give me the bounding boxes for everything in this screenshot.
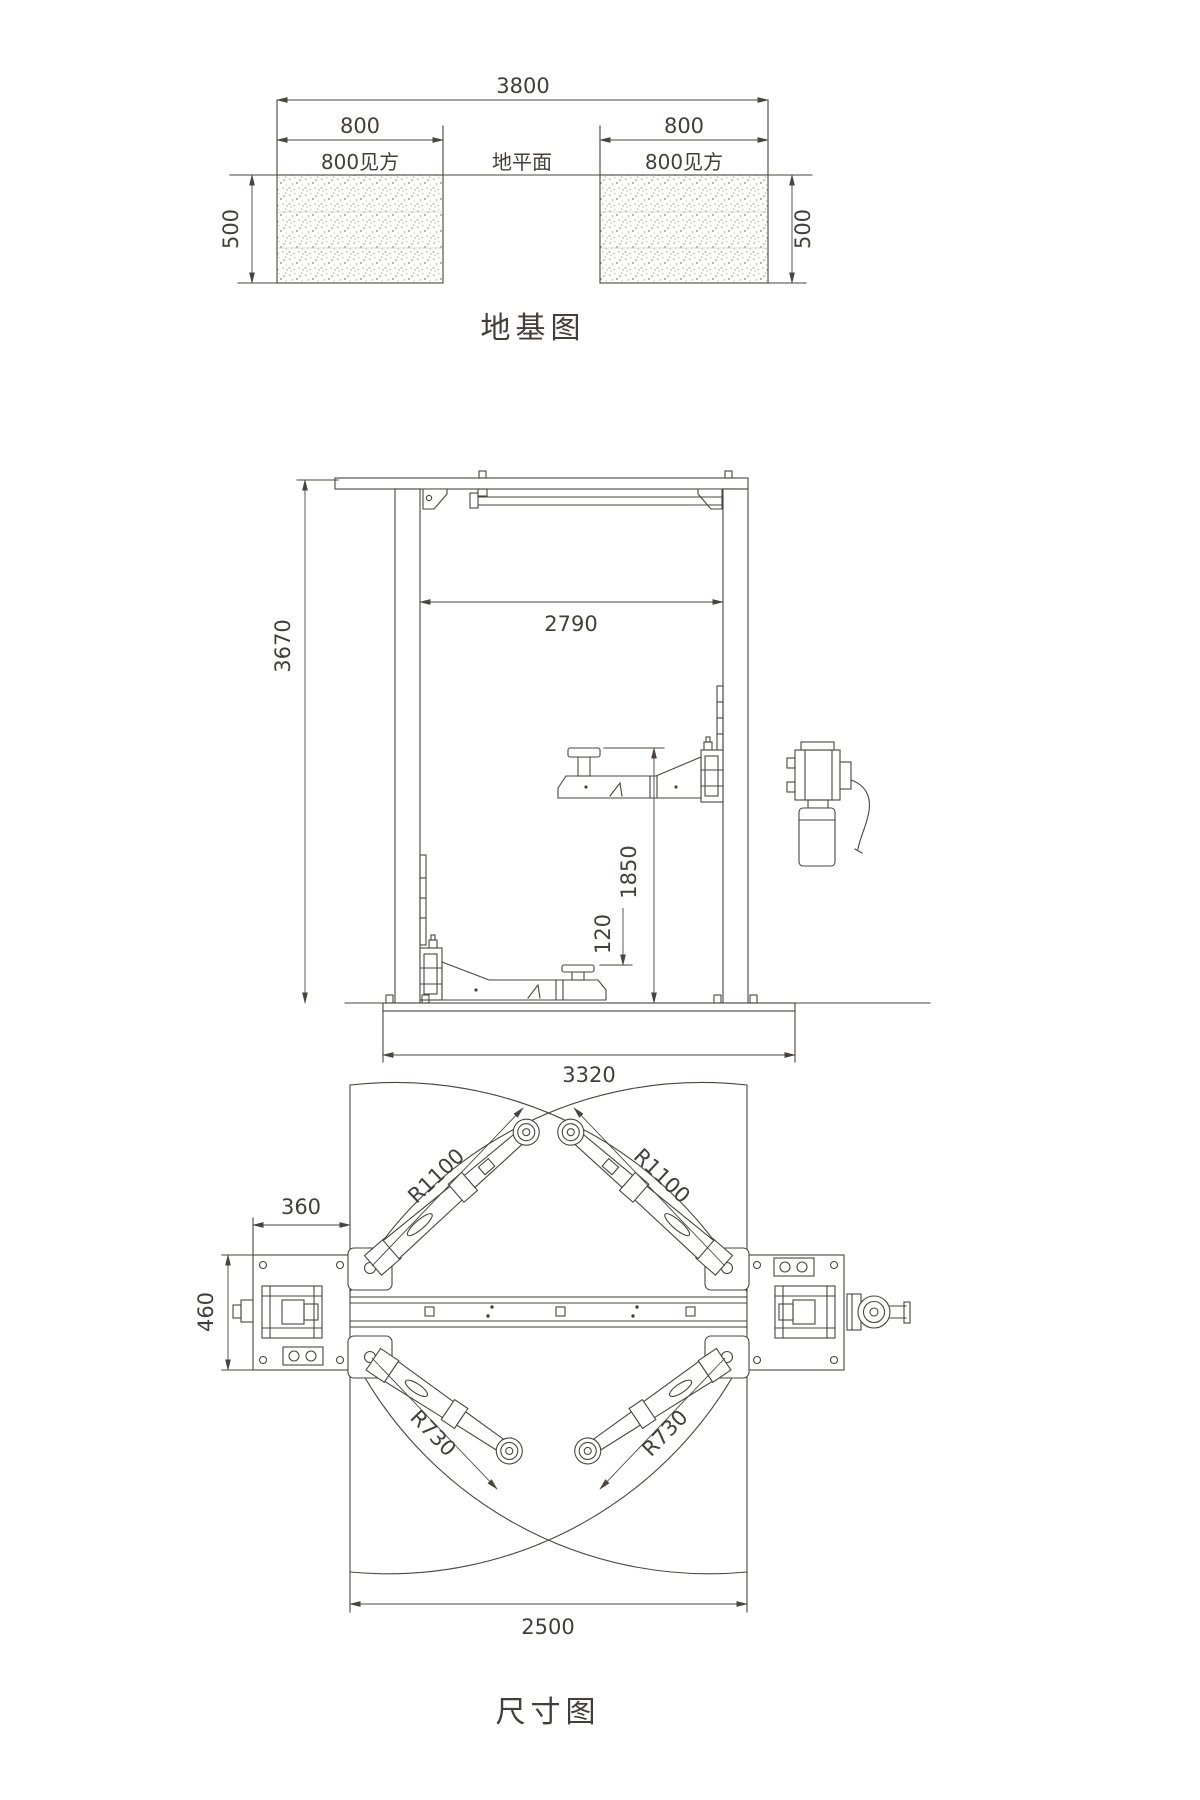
swing-arm-lowered — [442, 962, 606, 1000]
lift-installation-drawing: 3800 800 800 800见方 地平面 800见方 500 — [0, 0, 1200, 1800]
lift-pad-lowered-stem — [572, 972, 584, 980]
dim-overall-width: 3800 — [496, 74, 549, 98]
lift-pad-lowered-cap — [562, 965, 594, 972]
dim-total-height: 3670 — [271, 619, 295, 672]
lift-pad-raised-stem — [578, 757, 590, 776]
oil-tank — [799, 808, 835, 866]
plan-arm-front-left — [364, 1114, 544, 1275]
dim-pad-depth-right: 500 — [791, 209, 815, 249]
power-unit-plan — [847, 1294, 910, 1330]
front-view: 3670 2790 1850 120 3320 — [271, 471, 930, 1087]
pad-label-right: 800见方 — [645, 150, 723, 174]
dim-column-plate-width: 360 — [281, 1195, 321, 1219]
swing-envelope — [350, 1082, 747, 1573]
beam-gusset-right — [698, 489, 722, 509]
dim-pad-width-right: 800 — [664, 114, 704, 138]
plan-column-left — [233, 1255, 350, 1370]
dim-max-pad-height: 1850 — [617, 845, 641, 898]
dim-pad-width-left: 800 — [340, 114, 380, 138]
ground-level-label: 地平面 — [492, 150, 552, 174]
power-unit — [787, 742, 869, 866]
motor-box — [795, 750, 840, 800]
left-column — [395, 489, 420, 1003]
technical-drawing-page: 3800 800 800 800见方 地平面 800见方 500 — [0, 0, 1200, 1800]
right-foundation-pad — [600, 175, 768, 283]
swing-arm-raised — [558, 748, 701, 798]
dim-drive-through: 2500 — [521, 1615, 574, 1639]
plan-arm-front-right — [552, 1114, 732, 1275]
dim-clear-width: 2790 — [544, 612, 597, 636]
carriage-right — [701, 737, 723, 802]
left-foundation-pad — [277, 175, 443, 283]
lift-pad-raised-cap — [568, 748, 600, 757]
right-column-lock-strip — [717, 686, 723, 750]
dim-column-plate-depth: 460 — [194, 1292, 218, 1332]
foundation-diagram: 3800 800 800 800见方 地平面 800见方 500 — [219, 74, 815, 346]
foundation-diagram-title: 地基图 — [481, 311, 586, 346]
dim-min-pad-height: 120 — [591, 914, 615, 954]
right-column — [723, 489, 748, 1003]
plan-view-title: 尺寸图 — [496, 1695, 601, 1730]
plan-column-right — [747, 1255, 844, 1370]
pad-label-left: 800见方 — [321, 150, 399, 174]
dim-pad-depth-left: 500 — [219, 209, 243, 249]
plan-beam — [310, 1297, 790, 1327]
hydraulic-hose — [851, 780, 869, 849]
plan-view: R1100 R1100 R730 R730 360 460 2500 尺寸图 — [194, 1082, 910, 1730]
left-column-lock-strip — [420, 855, 426, 945]
dim-base-width: 3320 — [562, 1063, 615, 1087]
